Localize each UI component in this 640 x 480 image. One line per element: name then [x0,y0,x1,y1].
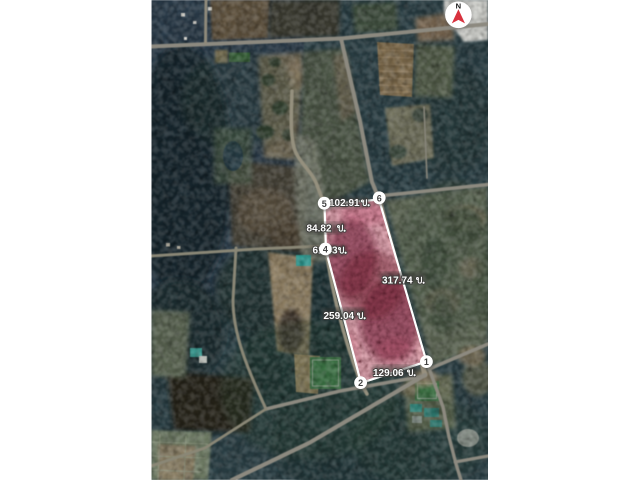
svg-text:317.74: 317.74 [382,276,413,287]
svg-text:129.06: 129.06 [373,368,404,379]
svg-text:4: 4 [323,245,328,255]
svg-text:N: N [456,1,461,10]
svg-text:6: 6 [377,193,382,203]
svg-text:84.82: 84.82 [307,224,332,235]
svg-text:102.91: 102.91 [329,198,360,209]
svg-text:5: 5 [322,199,327,209]
svg-text:259.04: 259.04 [324,311,355,322]
svg-text:1: 1 [424,357,429,367]
svg-text:2: 2 [358,378,363,388]
